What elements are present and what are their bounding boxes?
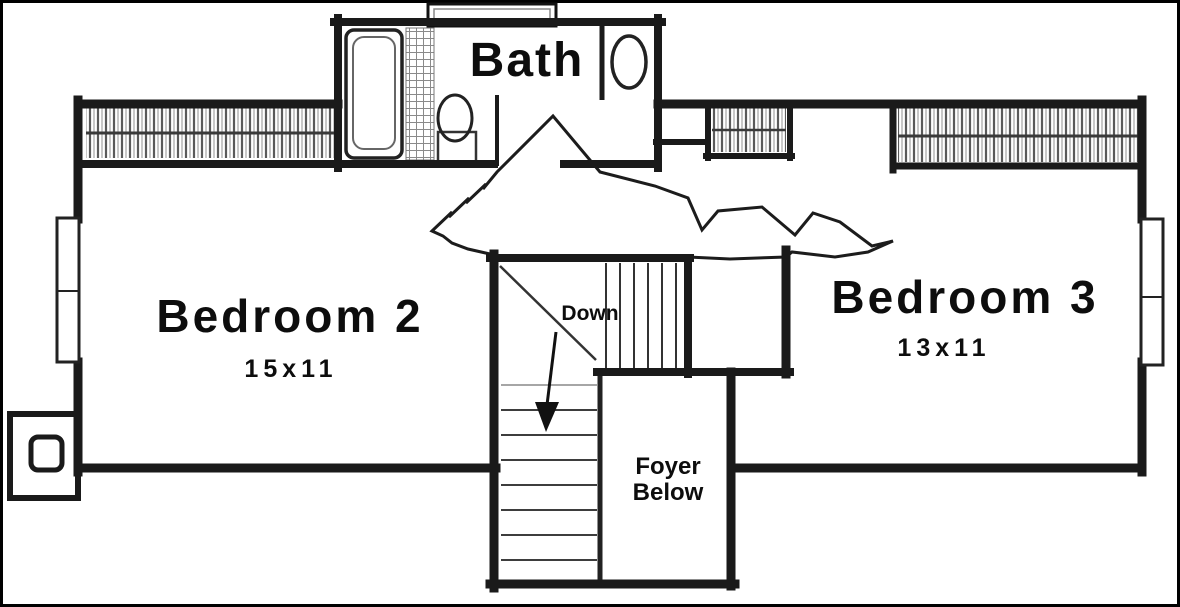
closet-left-hatch <box>86 108 334 158</box>
bedroom2-size: 15x11 <box>244 355 337 383</box>
closet-right-hatch <box>898 108 1138 162</box>
chimney <box>10 414 78 498</box>
down-label: Down <box>561 302 618 325</box>
bath-label: Bath <box>470 34 585 87</box>
bedroom3-label: Bedroom 3 <box>831 271 1098 323</box>
down-arrow <box>535 332 559 432</box>
bedroom3-size: 13x11 <box>897 334 990 362</box>
sink <box>438 95 476 162</box>
window-left <box>57 218 79 362</box>
floor-plan-drawing: Bath Bedroom 2 15x11 Bedroom 3 13x11 Dow… <box>0 0 1180 607</box>
hall-outline <box>432 116 893 259</box>
bath-tile-strip <box>406 28 434 160</box>
foyer-label-line1: Foyer <box>635 453 700 480</box>
window-right <box>1141 219 1163 365</box>
bedroom2-label: Bedroom 2 <box>156 290 423 342</box>
linen-closet-hatch <box>712 108 786 152</box>
foyer-label-line2: Below <box>633 479 704 506</box>
floor-plan: Bath Bedroom 2 15x11 Bedroom 3 13x11 Dow… <box>0 0 1180 607</box>
toilet <box>612 36 646 88</box>
bathtub <box>346 30 402 158</box>
